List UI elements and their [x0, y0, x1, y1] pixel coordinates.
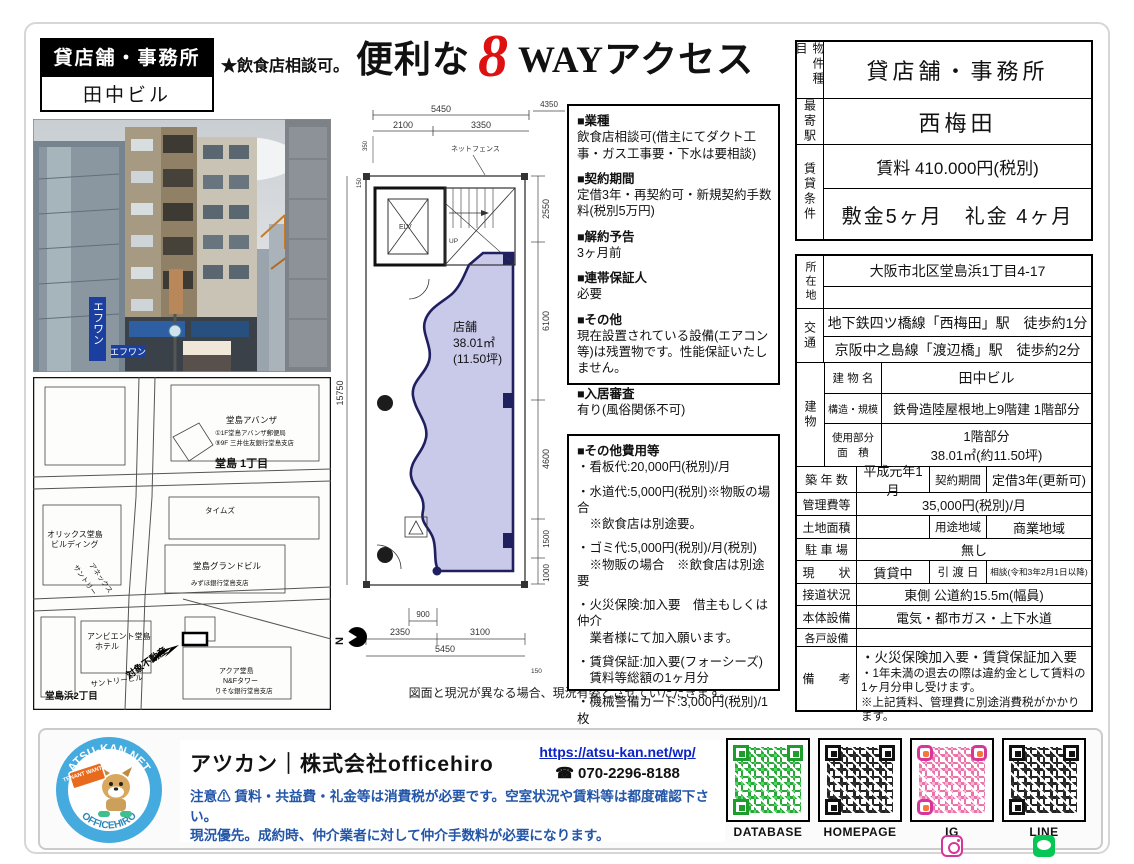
section-body: 必要 [577, 286, 772, 302]
map-label: ビルディング [51, 539, 98, 549]
cost-item: ・火災保険:加入要 借主もしくは仲介 業者様にて加入願います。 [577, 597, 772, 646]
company-logo: ATSU-KAN.NET OFFICEHIRO TENANT WANTED [54, 735, 164, 845]
company-info-panel: アツカン｜株式会社officehiro https://atsu-kan.net… [180, 740, 725, 842]
target-parcel [183, 633, 207, 645]
catch-pre: 便利な [356, 29, 470, 83]
map-label: ①1F堂島アバンザ郵便局 [215, 428, 286, 437]
area-map: 堂島 1丁目 堂島アバンザ ①1F堂島アバンザ郵便局 ⑨9F 三井住友銀行堂島支… [33, 377, 331, 710]
property-type-value: 貸店舗・事務所 [824, 42, 1091, 98]
dim-label: 2350 [390, 627, 410, 637]
cost-item: ・看板代:20,000円(税別)/月 [577, 459, 772, 475]
section-title: ■入居審査 [577, 386, 772, 402]
detail-table: 所在地 大阪市北区堂島浜1丁目4-17 交通 地下鉄四ツ橋線「西梅田」駅 徒歩約… [795, 254, 1093, 712]
dim-label: 150 [531, 668, 542, 675]
remarks-label: 備 考 [797, 647, 857, 710]
building-name-box: 田中ビル [40, 75, 214, 112]
zone-value: 商業地域 [987, 516, 1091, 538]
costs-title: ■その他費用等 [577, 443, 772, 459]
type-label: 物件種目 [793, 42, 827, 98]
section-body: 3ヶ月前 [577, 245, 772, 261]
company-name: アツカン｜株式会社officehiro [190, 748, 520, 778]
dim-label: 4350 [540, 100, 558, 109]
section-title: ■連帯保証人 [577, 270, 772, 286]
dim-label: 350 [363, 140, 369, 151]
contract-value: 定借3年(更新可) [987, 467, 1091, 492]
cost-item: ・ゴミ代:5,000円(税別)/月(税別) ※物販の場合 ※飲食店は別途要 [577, 540, 772, 589]
facility-value: 電気・都市ガス・上下水道 [857, 606, 1091, 628]
dim-label: 3100 [470, 627, 490, 637]
summary-table: 物件種目 貸店舗・事務所 最寄駅 西梅田 賃貸条件 賃料 410.000円(税別… [795, 40, 1093, 241]
homepage-link[interactable]: https://atsu-kan.net/wp/ [520, 744, 715, 760]
dim-label: 5450 [435, 644, 455, 654]
cost-item: ・賃貸保証:加入要(フォーシーズ) 賃料等総額の1ヶ月分 [577, 654, 772, 687]
structure-label: 構造・規模 [824, 394, 882, 423]
built-label: 築 年 数 [797, 467, 857, 492]
floor-plan: 5450 4350 2100 3350 350 150 ネットフェンス ELV [333, 93, 573, 701]
qr-line: LINE [1002, 738, 1086, 839]
deposit-value: 敷金5ヶ月 礼金 4ヶ月 [824, 188, 1091, 239]
location-value: 大阪市北区堂島浜1丁目4-17 [824, 256, 1091, 286]
map-label: 堂島 1丁目 [215, 456, 268, 470]
parking-value: 無し [857, 539, 1091, 560]
section-body: 定借3年・再契約可・新規契約手数料(税別5万円) [577, 187, 772, 220]
map-label: N&Fタワー [223, 676, 258, 685]
dim-label: 150 [357, 177, 363, 188]
handover-value: 相談(令和3年2月1日以降) [987, 561, 1091, 583]
instagram-icon [941, 835, 963, 857]
road-label: 接道状況 [797, 584, 857, 605]
building-label: 建物 [802, 400, 819, 430]
qr-label: HOMEPAGE [818, 825, 902, 839]
section-title: ■業種 [577, 113, 772, 129]
stairs-label: UP [449, 238, 458, 245]
status-label: 現 状 [797, 561, 857, 583]
road-value: 東側 公道約15.5m(幅員) [857, 584, 1091, 605]
restaurant-note: ★飲食店相談可。 [221, 52, 349, 76]
fence-label: ネットフェンス [451, 145, 500, 153]
banner [169, 269, 183, 314]
remarks-line-3: ※上記賃料、管理費に別途消費税がかかります。 [861, 696, 1087, 725]
sign-text-vertical: エフワン [92, 301, 104, 345]
north-compass-icon: N [334, 627, 367, 647]
sign-text-horizontal: エフワン [110, 347, 146, 357]
map-label: 堂島アバンザ [226, 415, 278, 425]
phone-icon: ☎ [555, 765, 574, 782]
awning [183, 341, 231, 355]
map-label: りそな銀行堂島支店 [215, 686, 273, 695]
status-value: 賃貸中 [857, 561, 929, 583]
dim-label: 2550 [541, 199, 551, 219]
dim-label: 5450 [431, 104, 451, 114]
section-title: ■解約予告 [577, 229, 772, 245]
elevator-label: ELV [399, 224, 412, 231]
map-label: タイムズ [205, 505, 235, 515]
area-floor-value: 1階部分 [963, 426, 1009, 445]
shop-area [411, 253, 513, 571]
building-photo: エフワン エフワン [33, 119, 331, 372]
dim-label: 1000 [542, 564, 551, 582]
handover-label: 引 渡 日 [929, 561, 987, 583]
access-value-2: 京阪中之島線「渡辺橋」駅 徒歩約2分 [824, 336, 1091, 362]
remarks-line-2: ・1年未満の退去の際は違約金として賃料の1ヶ月分申し受けます。 [861, 667, 1087, 696]
unit-value [857, 629, 1091, 646]
dim-label: 4600 [541, 449, 551, 469]
land-label: 土地面積 [797, 516, 857, 538]
map-label: みずほ銀行堂島支店 [191, 578, 249, 587]
conditions-box: ■業種飲食店相談可(借主にてダクト工事・ガス工事要・下水は要相談) ■契約期間定… [567, 104, 780, 385]
catch-copy: 便利な 8 WAYアクセス [356, 28, 754, 84]
dim-label: 1500 [542, 530, 551, 548]
flyer-page: 貸店舗・事務所 田中ビル ★飲食店相談可。 便利な 8 WAYアクセス [0, 0, 1134, 864]
section-title: ■その他 [577, 312, 772, 328]
section-body: 飲食店相談可(借主にてダクト工事・ガス工事要・下水は要相談) [577, 129, 772, 162]
remarks-line-1: ・火災保険加入要・賃貸保証加入要 [861, 650, 1087, 667]
qr-label: DATABASE [726, 825, 810, 839]
catch-number: 8 [478, 28, 508, 84]
line-icon [1033, 835, 1055, 857]
access-value-1: 地下鉄四ツ橋線「西梅田」駅 徒歩約1分 [824, 309, 1091, 336]
map-label: 堂島グランドビル [193, 561, 262, 571]
section-body: 有り(風俗関係不可) [577, 402, 772, 418]
shop-area-value: 38.01㎡ [453, 336, 495, 350]
built-value: 平成元年1月 [857, 467, 929, 492]
property-type-badge: 貸店舗・事務所 [40, 38, 214, 75]
qr-database: DATABASE [726, 738, 810, 839]
map-label: オリックス堂島 [47, 529, 103, 539]
land-value [857, 516, 929, 538]
dim-label: 15750 [335, 380, 345, 405]
cost-item: ・水道代:5,000円(税別)※物販の場合 ※飲食店は別途要。 [577, 484, 772, 533]
fee-value: 35,000円(税別)/月 [857, 493, 1091, 515]
shop-label: 店舗 [453, 320, 477, 334]
dim-label: 2100 [393, 120, 413, 130]
contract-label: 契約期間 [929, 467, 987, 492]
notice-line-1: 注意⚠ 賃料・共益費・礼金等は消費税が必要です。空室状況や賃料等は都度確認下さい… [190, 787, 715, 826]
phone-number: 070-2296-8188 [578, 765, 680, 782]
dim-label: 6100 [541, 311, 551, 331]
other-costs-box: ■その他費用等 ・看板代:20,000円(税別)/月 ・水道代:5,000円(税… [567, 434, 780, 691]
station-value: 西梅田 [824, 99, 1091, 144]
qr-instagram: IG [910, 738, 994, 839]
map-label: ホテル [95, 642, 119, 651]
map-label: アンビエント堂島 [87, 631, 151, 641]
notice-line-2: 現況優先。成約時、仲介業者に対して仲介手数料が必要になります。 [190, 826, 715, 846]
terms-label: 賃貸条件 [802, 162, 819, 222]
building-name-label: 建 物 名 [824, 363, 882, 393]
facility-label: 本体設備 [797, 606, 857, 628]
location-value2 [824, 286, 1091, 308]
area-size-value: 38.01㎡(約11.50坪) [931, 445, 1043, 464]
cost-item: ・機械警備カード:3,000円(税別)/1枚 [577, 694, 772, 727]
fee-label: 管理費等 [797, 493, 857, 515]
section-body: 現在設置されている設備(エアコン等)は残置物です。性能保証いたしません。 [577, 328, 772, 377]
map-label: 堂島浜2丁目 [45, 690, 98, 702]
qr-homepage: HOMEPAGE [818, 738, 902, 839]
catch-post: WAYアクセス [518, 29, 754, 83]
station-label: 最寄駅 [802, 99, 819, 144]
qr-group: DATABASE HOMEPAGE IG [726, 738, 1086, 839]
location-label: 所在地 [802, 261, 818, 303]
dim-label: 900 [416, 610, 430, 619]
unit-label: 各戸設備 [797, 629, 857, 646]
footer: ATSU-KAN.NET OFFICEHIRO TENANT WANTED [38, 728, 1103, 850]
shop-tsubo-value: (11.50坪) [453, 352, 502, 366]
building-name-value: 田中ビル [882, 368, 1091, 388]
rent-value: 賃料 410.000円(税別) [824, 145, 1091, 188]
access-label: 交通 [802, 321, 819, 351]
section-title: ■契約期間 [577, 171, 772, 187]
map-label: アクア堂島 [219, 666, 254, 675]
dim-label: 3350 [471, 120, 491, 130]
structure-value: 鉄骨造陸屋根地上9階建 1階部分 [882, 399, 1091, 418]
map-label: ⑨9F 三井住友銀行堂島支店 [215, 438, 294, 447]
zone-label: 用途地域 [929, 516, 987, 538]
parking-label: 駐 車 場 [797, 539, 857, 560]
